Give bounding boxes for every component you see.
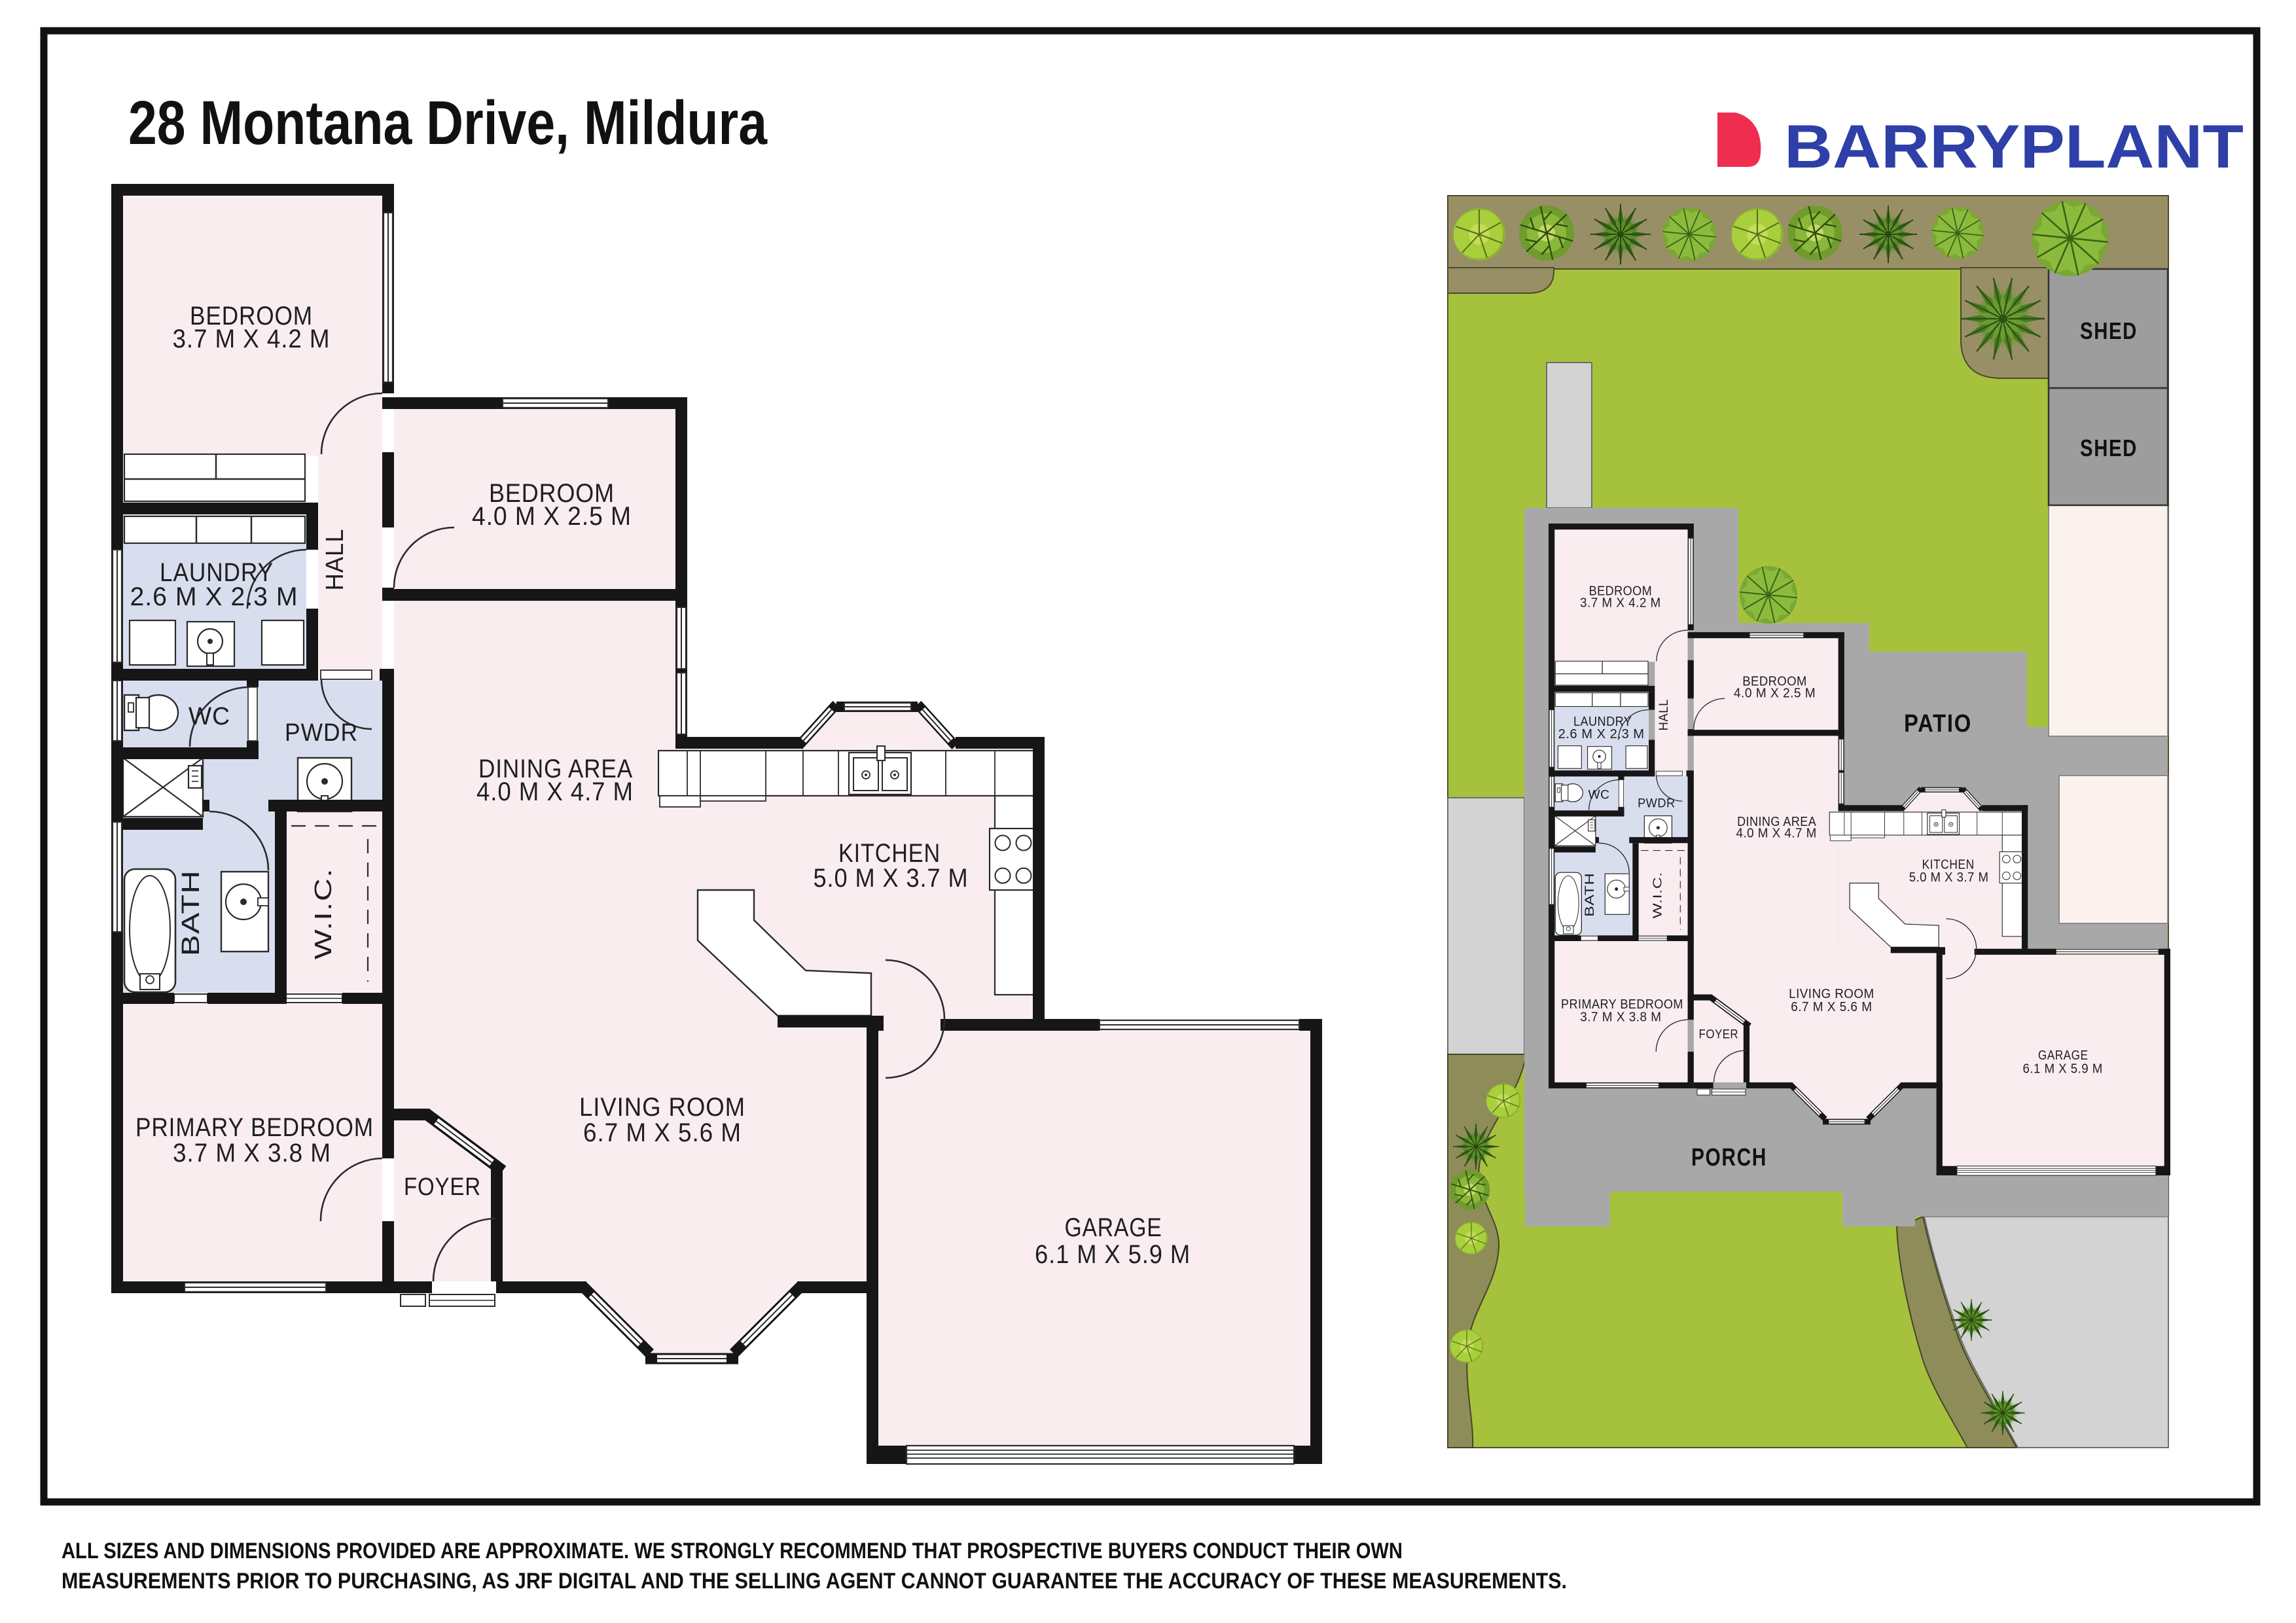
svg-text:2.6 M X 2.3 M: 2.6 M X 2.3 M <box>130 582 298 611</box>
svg-text:LIVING ROOM: LIVING ROOM <box>579 1093 745 1122</box>
svg-text:PWDR: PWDR <box>285 719 358 747</box>
svg-text:3.7 M X 3.8 M: 3.7 M X 3.8 M <box>173 1139 331 1168</box>
svg-text:MEASUREMENTS PRIOR TO PURCHASI: MEASUREMENTS PRIOR TO PURCHASING, AS JRF… <box>62 1569 1567 1594</box>
svg-text:SHED: SHED <box>2080 435 2138 461</box>
svg-text:4.0 M X 2.5 M: 4.0 M X 2.5 M <box>472 502 632 531</box>
svg-text:ALL SIZES AND DIMENSIONS PROVI: ALL SIZES AND DIMENSIONS PROVIDED ARE AP… <box>62 1539 1403 1563</box>
svg-text:PATIO: PATIO <box>1904 710 1972 738</box>
svg-text:BARRYPLANT: BARRYPLANT <box>1784 112 2244 181</box>
svg-text:FOYER: FOYER <box>404 1173 481 1201</box>
svg-text:W.I.C.: W.I.C. <box>310 868 336 959</box>
svg-text:HALL: HALL <box>321 529 349 591</box>
svg-text:WC: WC <box>188 703 230 730</box>
svg-text:4.0 M X 4.7 M: 4.0 M X 4.7 M <box>476 777 634 806</box>
svg-text:SHED: SHED <box>2080 317 2138 344</box>
svg-text:28 Montana Drive, Mildura: 28 Montana Drive, Mildura <box>128 88 768 158</box>
svg-text:GARAGE: GARAGE <box>1065 1213 1162 1242</box>
svg-text:5.0 M X 3.7 M: 5.0 M X 3.7 M <box>814 864 969 893</box>
svg-text:3.7 M X 4.2 M: 3.7 M X 4.2 M <box>173 325 331 353</box>
svg-text:BATH: BATH <box>177 870 205 956</box>
svg-text:6.1 M X 5.9 M: 6.1 M X 5.9 M <box>1035 1240 1191 1269</box>
svg-text:PORCH: PORCH <box>1691 1144 1767 1171</box>
svg-text:PRIMARY BEDROOM: PRIMARY BEDROOM <box>135 1113 374 1142</box>
svg-text:6.7 M X 5.6 M: 6.7 M X 5.6 M <box>583 1118 742 1147</box>
